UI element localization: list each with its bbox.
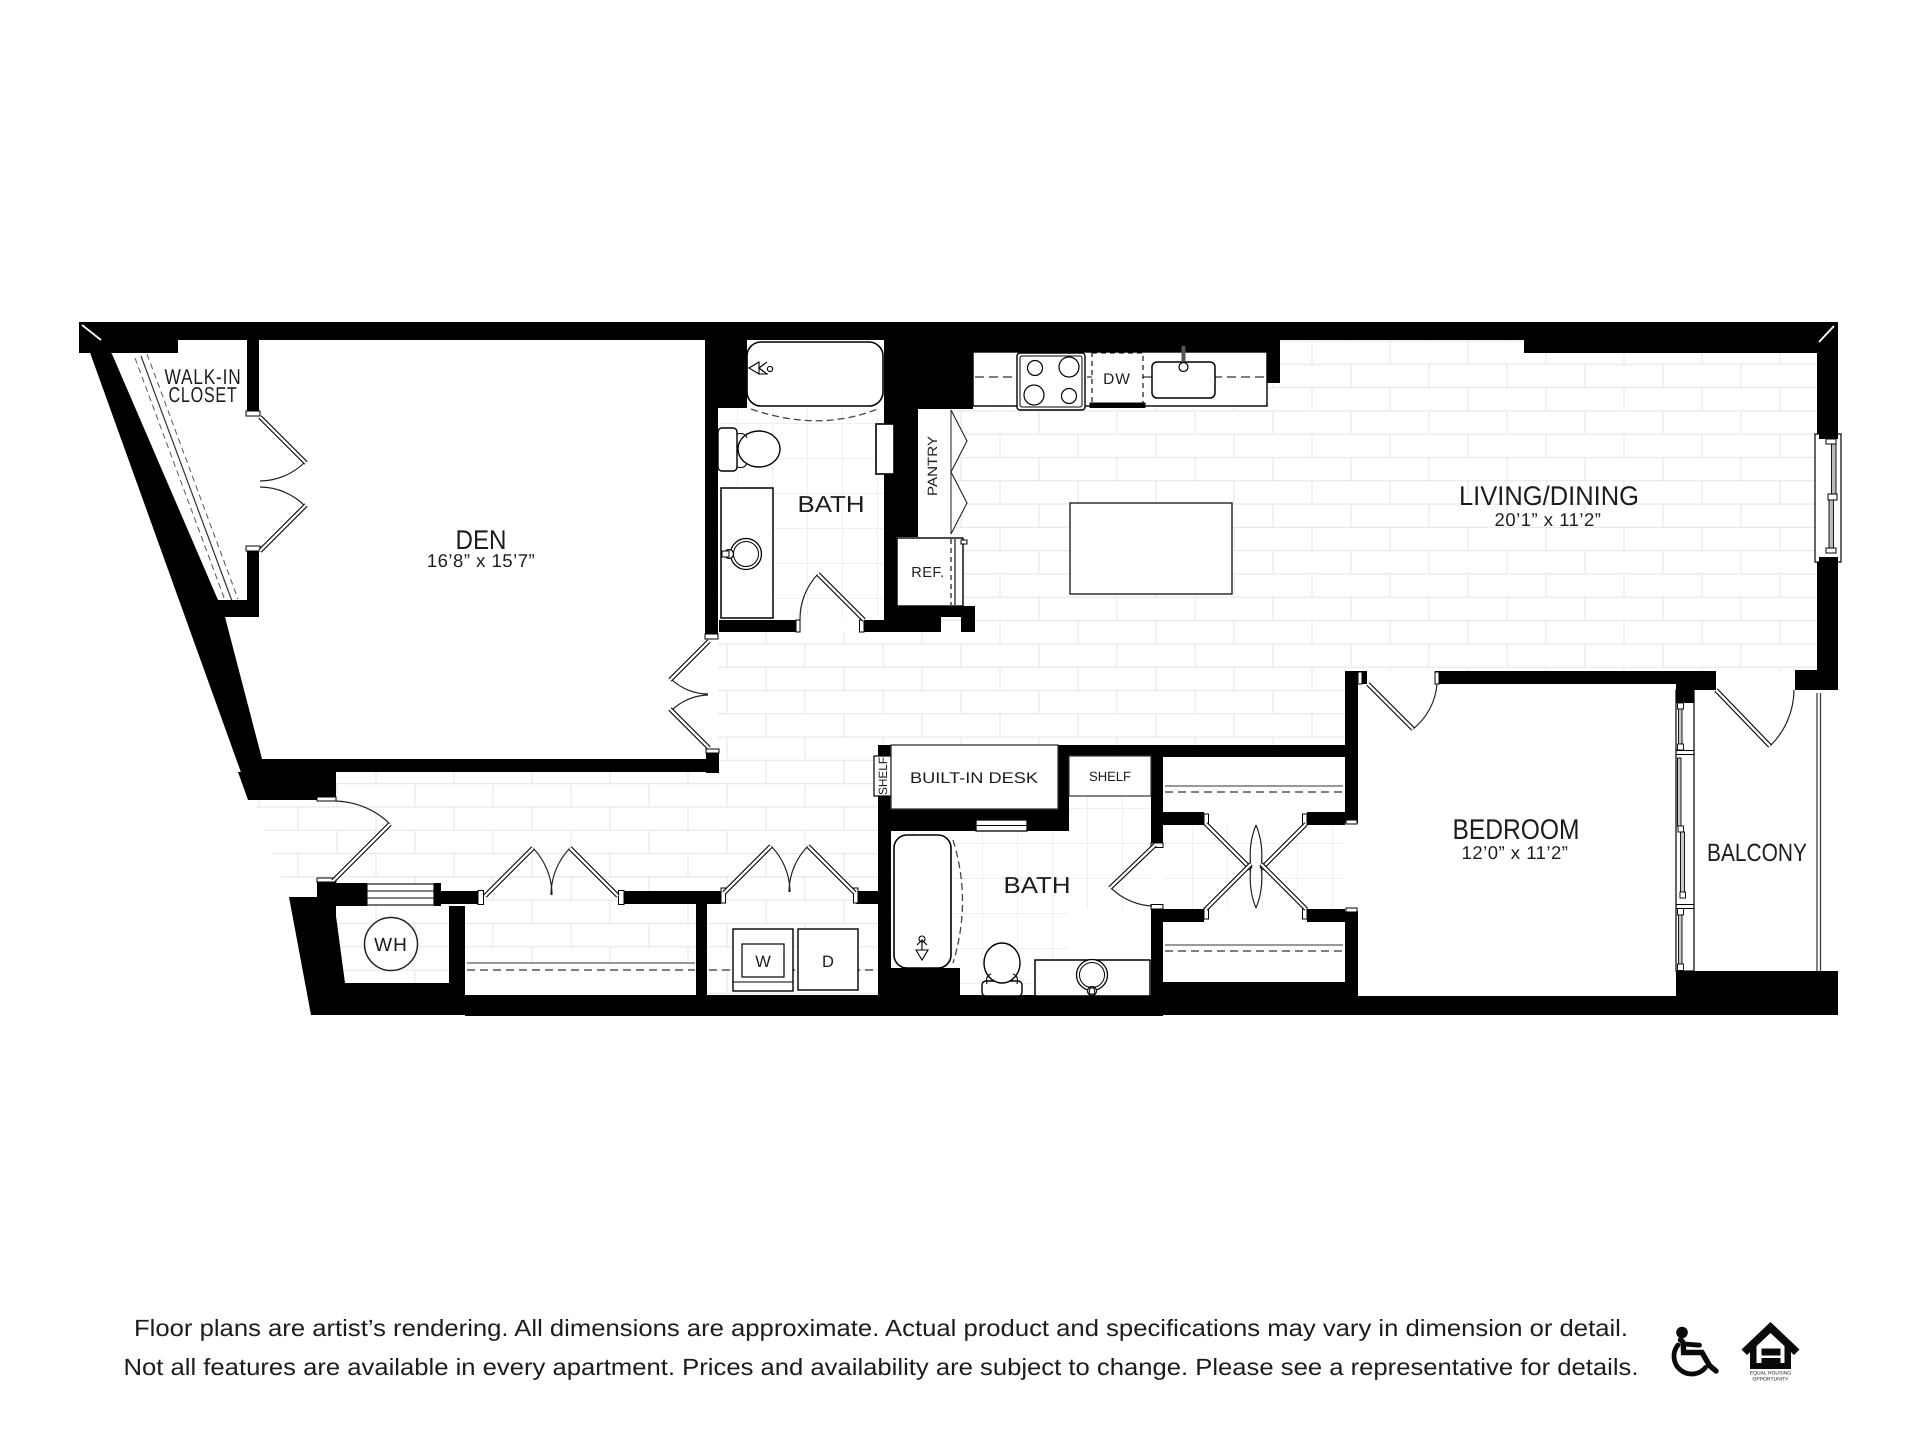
svg-text:D: D [822, 953, 834, 971]
svg-text:WH: WH [374, 935, 408, 956]
svg-text:BALCONY: BALCONY [1707, 839, 1807, 867]
svg-text:BATH: BATH [1004, 872, 1071, 898]
svg-text:LIVING/DINING: LIVING/DINING [1459, 481, 1639, 511]
svg-text:SHELF: SHELF [876, 757, 890, 795]
svg-text:BATH: BATH [798, 491, 865, 517]
svg-text:OPPORTUNITY: OPPORTUNITY [1752, 1377, 1789, 1383]
svg-text:16’8” x 15’7”: 16’8” x 15’7” [427, 550, 535, 571]
svg-text:Not all features are available: Not all features are available in every … [124, 1354, 1639, 1380]
svg-text:Floor plans are artist’s rende: Floor plans are artist’s rendering. All … [134, 1315, 1628, 1341]
svg-text:BUILT-IN DESK: BUILT-IN DESK [910, 770, 1039, 787]
svg-text:PANTRY: PANTRY [925, 436, 940, 496]
svg-text:DW: DW [1103, 371, 1131, 388]
svg-text:W: W [755, 953, 771, 971]
svg-text:CLOSET: CLOSET [169, 383, 238, 407]
svg-text:20’1” x 11’2”: 20’1” x 11’2” [1495, 509, 1602, 530]
svg-text:12’0” x 11’2”: 12’0” x 11’2” [1462, 842, 1569, 863]
svg-text:SHELF: SHELF [1089, 769, 1131, 784]
svg-text:REF.: REF. [911, 565, 944, 581]
